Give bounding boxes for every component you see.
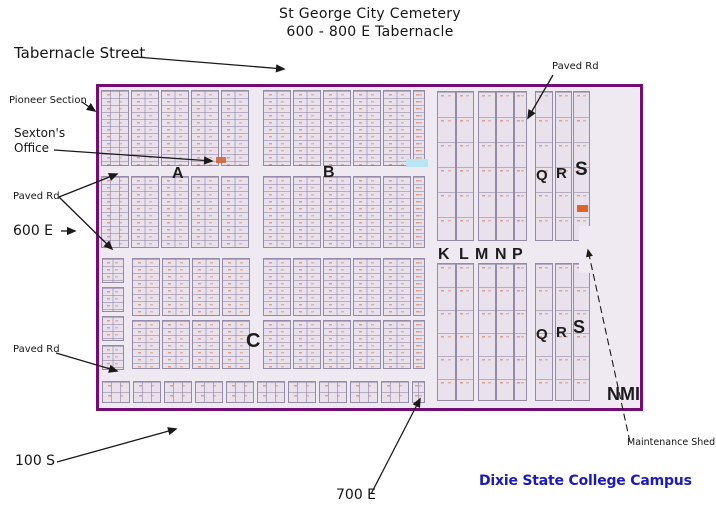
plot-block bbox=[132, 258, 160, 316]
sextons-office-mark bbox=[216, 157, 226, 163]
section-label-r-top: R bbox=[556, 166, 567, 181]
highlighted-plot bbox=[577, 205, 588, 212]
plot-block bbox=[226, 381, 254, 403]
plot-block bbox=[102, 345, 124, 370]
label-paved-rd-left: Paved Rd bbox=[13, 191, 60, 203]
plot-block bbox=[413, 90, 425, 166]
section-label-nmi: NMI bbox=[607, 385, 640, 403]
label-100-s: 100 S bbox=[15, 453, 55, 469]
map-title: St George City Cemetery 600 - 800 E Tabe… bbox=[130, 6, 610, 40]
plot-block bbox=[192, 320, 220, 369]
section-label-r-bottom: R bbox=[556, 325, 567, 340]
cemetery-map: A B C K L M N P Q R S Q R S NMI bbox=[96, 84, 643, 411]
section-label-l: L bbox=[459, 247, 469, 263]
label-pioneer-section: Pioneer Section bbox=[9, 95, 87, 107]
section-label-p: P bbox=[512, 247, 523, 263]
section-label-m: M bbox=[475, 247, 488, 263]
plot-block bbox=[514, 263, 527, 401]
plot-block bbox=[413, 320, 425, 369]
plot-block bbox=[222, 258, 250, 316]
plot-block bbox=[350, 381, 378, 403]
plot-block bbox=[413, 258, 425, 316]
section-label-a: A bbox=[172, 166, 184, 182]
plot-blocks-area: A B C K L M N P Q R S Q R S NMI bbox=[99, 87, 640, 408]
label-700-e: 700 E bbox=[336, 487, 376, 503]
section-label-k: K bbox=[438, 247, 450, 263]
map-title-line2: 600 - 800 E Tabernacle bbox=[130, 24, 610, 40]
plot-block bbox=[263, 176, 291, 248]
plot-block bbox=[221, 90, 249, 166]
section-label-b: B bbox=[323, 165, 335, 181]
plot-block bbox=[257, 381, 285, 403]
plot-block bbox=[131, 176, 159, 248]
plot-block bbox=[353, 258, 381, 316]
plot-block bbox=[131, 90, 159, 166]
plot-block bbox=[133, 381, 161, 403]
map-notch-lower bbox=[579, 263, 592, 273]
plot-block bbox=[263, 90, 291, 166]
map-notch-upper bbox=[579, 226, 592, 242]
plot-block bbox=[383, 320, 411, 369]
plot-block bbox=[101, 90, 129, 166]
plot-block bbox=[323, 176, 351, 248]
map-title-line1: St George City Cemetery bbox=[130, 6, 610, 22]
plot-block bbox=[102, 316, 124, 341]
label-tabernacle-street: Tabernacle Street bbox=[14, 45, 145, 62]
plot-block bbox=[496, 263, 514, 401]
label-paved-rd-top-right: Paved Rd bbox=[552, 61, 599, 73]
plot-block bbox=[293, 320, 321, 369]
plot-block bbox=[323, 90, 351, 166]
plot-block bbox=[161, 90, 189, 166]
plot-block bbox=[263, 258, 291, 316]
section-label-s-bottom: S bbox=[573, 318, 585, 336]
plot-block bbox=[383, 258, 411, 316]
plot-block bbox=[535, 91, 553, 241]
plot-block bbox=[353, 320, 381, 369]
plot-block bbox=[478, 91, 496, 241]
plot-block bbox=[293, 90, 321, 166]
plot-block bbox=[383, 176, 411, 248]
plot-block bbox=[221, 176, 249, 248]
plot-block bbox=[412, 381, 425, 403]
section-label-q-top: Q bbox=[536, 168, 548, 183]
label-sextons-office-line2: Office bbox=[14, 142, 49, 156]
plot-block bbox=[195, 381, 223, 403]
700-e-arrow bbox=[371, 399, 420, 494]
100-s-arrow bbox=[57, 429, 176, 462]
plot-block bbox=[323, 320, 351, 369]
plot-block bbox=[263, 320, 291, 369]
section-label-c: C bbox=[246, 331, 260, 351]
plot-block bbox=[191, 176, 219, 248]
plot-block bbox=[353, 176, 381, 248]
blue-highlight-mark bbox=[406, 159, 428, 167]
plot-block bbox=[383, 90, 411, 166]
plot-block bbox=[288, 381, 316, 403]
plot-block bbox=[413, 176, 425, 248]
label-paved-rd-bottom: Paved Rd bbox=[13, 344, 60, 356]
plot-block bbox=[323, 258, 351, 316]
plot-block bbox=[514, 91, 527, 241]
label-sextons-office-line1: Sexton's bbox=[14, 127, 65, 141]
plot-block bbox=[191, 90, 219, 166]
plot-block bbox=[456, 263, 474, 401]
plot-block bbox=[132, 320, 160, 369]
section-label-n: N bbox=[495, 247, 507, 263]
plot-block bbox=[478, 263, 496, 401]
plot-block bbox=[496, 91, 514, 241]
label-dixie-state-college-campus: Dixie State College Campus bbox=[479, 473, 692, 489]
plot-block bbox=[164, 381, 192, 403]
plot-block bbox=[102, 287, 124, 312]
plot-block bbox=[102, 381, 130, 403]
section-label-q-bottom: Q bbox=[536, 327, 548, 342]
plot-block bbox=[101, 176, 129, 248]
plot-block bbox=[192, 258, 220, 316]
plot-block bbox=[293, 176, 321, 248]
plot-block bbox=[162, 320, 190, 369]
plot-block bbox=[319, 381, 347, 403]
label-600-e: 600 E bbox=[13, 223, 53, 239]
plot-block bbox=[162, 258, 190, 316]
plot-block bbox=[293, 258, 321, 316]
plot-block bbox=[456, 91, 474, 241]
plot-block bbox=[437, 263, 456, 401]
cemetery-map-page: St George City Cemetery 600 - 800 E Tabe… bbox=[0, 0, 716, 518]
plot-block bbox=[381, 381, 409, 403]
plot-block bbox=[161, 176, 189, 248]
plot-block bbox=[353, 90, 381, 166]
tabernacle-street-arrow bbox=[136, 57, 284, 69]
label-maintenance-shed: Maintenance Shed bbox=[627, 438, 715, 449]
plot-block bbox=[437, 91, 456, 241]
plot-block bbox=[102, 258, 124, 283]
section-label-s-top: S bbox=[575, 160, 588, 179]
